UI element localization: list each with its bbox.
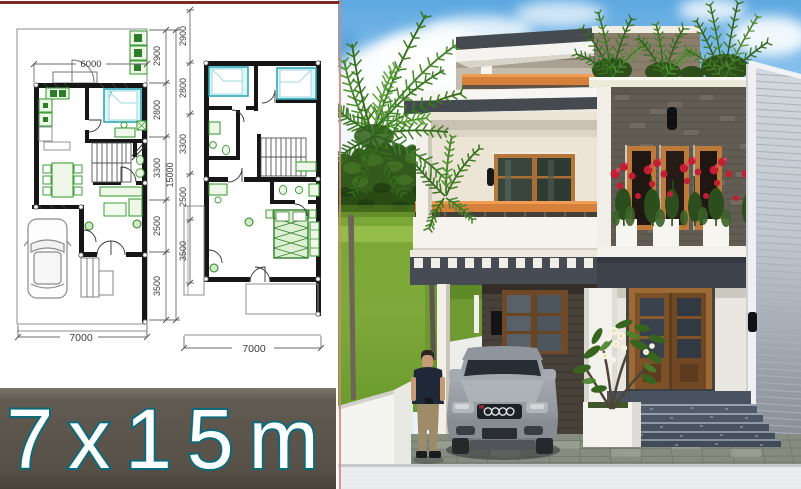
svg-text:3500: 3500 xyxy=(178,241,188,261)
svg-text:6000: 6000 xyxy=(80,59,101,70)
svg-text:2800: 2800 xyxy=(152,100,162,120)
svg-text:2900: 2900 xyxy=(178,26,188,46)
svg-text:7000: 7000 xyxy=(242,343,266,355)
svg-text:3300: 3300 xyxy=(178,134,188,154)
svg-text:7000: 7000 xyxy=(69,332,93,344)
svg-text:2900: 2900 xyxy=(152,46,162,66)
svg-text:7x15m: 7x15m xyxy=(6,392,333,486)
svg-text:2500: 2500 xyxy=(178,187,188,207)
svg-text:2800: 2800 xyxy=(178,78,188,98)
svg-text:3500: 3500 xyxy=(152,276,162,296)
svg-text:15000: 15000 xyxy=(165,162,175,187)
svg-text:2500: 2500 xyxy=(152,216,162,236)
svg-text:3300: 3300 xyxy=(152,158,162,178)
